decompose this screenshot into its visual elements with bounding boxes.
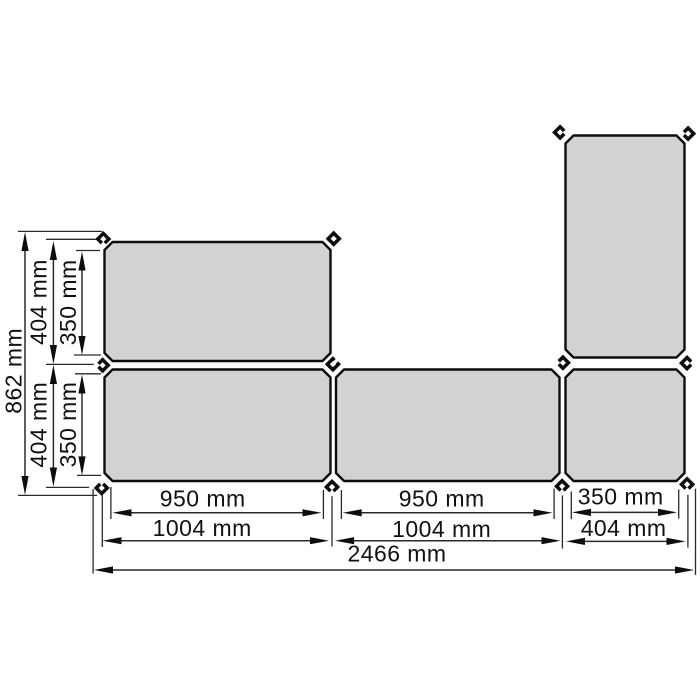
svg-text:350 mm: 350 mm xyxy=(55,382,81,468)
svg-text:404 mm: 404 mm xyxy=(26,259,52,345)
svg-text:350 mm: 350 mm xyxy=(55,259,81,345)
svg-text:2466 mm: 2466 mm xyxy=(347,541,446,567)
svg-text:350 mm: 350 mm xyxy=(578,483,664,509)
svg-text:1004 mm: 1004 mm xyxy=(392,516,491,542)
svg-text:1004 mm: 1004 mm xyxy=(153,515,252,541)
svg-text:404 mm: 404 mm xyxy=(26,382,52,468)
svg-text:862 mm: 862 mm xyxy=(1,328,27,414)
svg-text:950 mm: 950 mm xyxy=(160,486,246,512)
svg-text:950 mm: 950 mm xyxy=(399,486,485,512)
svg-text:404 mm: 404 mm xyxy=(581,515,667,541)
